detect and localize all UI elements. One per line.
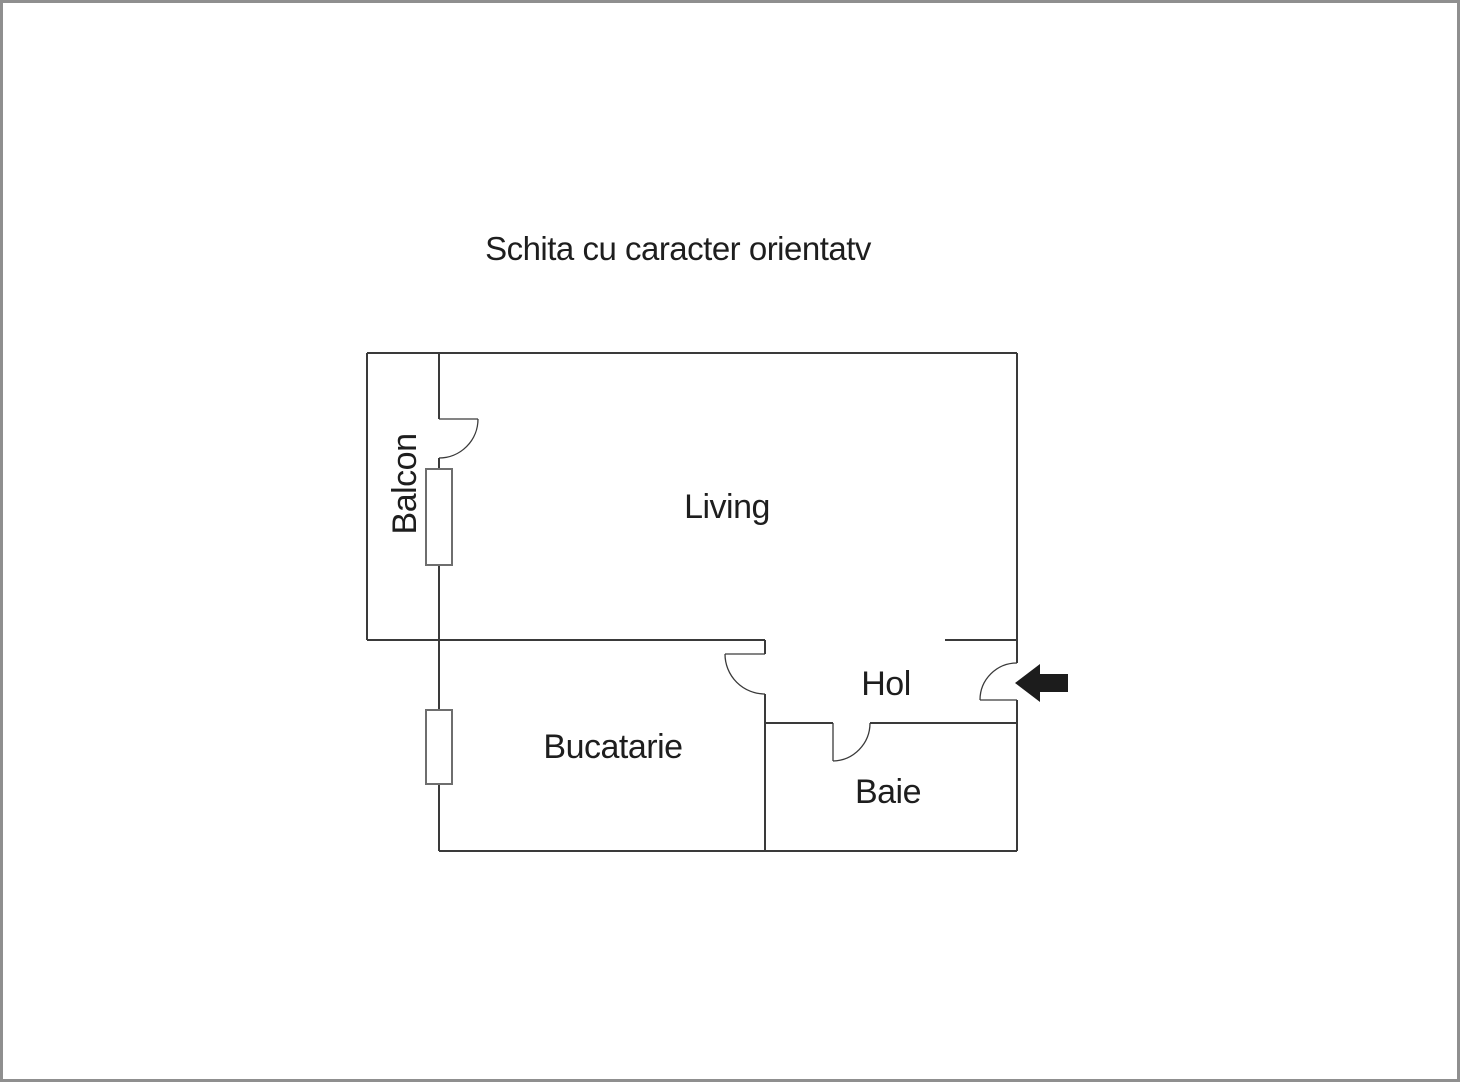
kitchen-window [426, 710, 452, 784]
room-label-baie: Baie [855, 773, 921, 811]
room-label-balcon: Balcon [386, 434, 424, 535]
balcony-window [426, 469, 452, 565]
sketch-page: Schita cu caracter orientatv [0, 0, 1460, 1082]
room-label-living: Living [684, 488, 770, 526]
entrance-arrow-icon [1015, 664, 1068, 702]
room-label-hol: Hol [861, 665, 911, 703]
room-label-bucatarie: Bucatarie [543, 728, 682, 766]
bathroom-door-arc [833, 723, 870, 761]
kitchen-door-arc [725, 654, 765, 694]
balcony-door-arc [439, 419, 478, 458]
floor-plan-canvas: Schita cu caracter orientatv [0, 0, 1460, 1082]
entrance-door-arc [980, 663, 1017, 700]
sketch-title: Schita cu caracter orientatv [485, 230, 872, 267]
